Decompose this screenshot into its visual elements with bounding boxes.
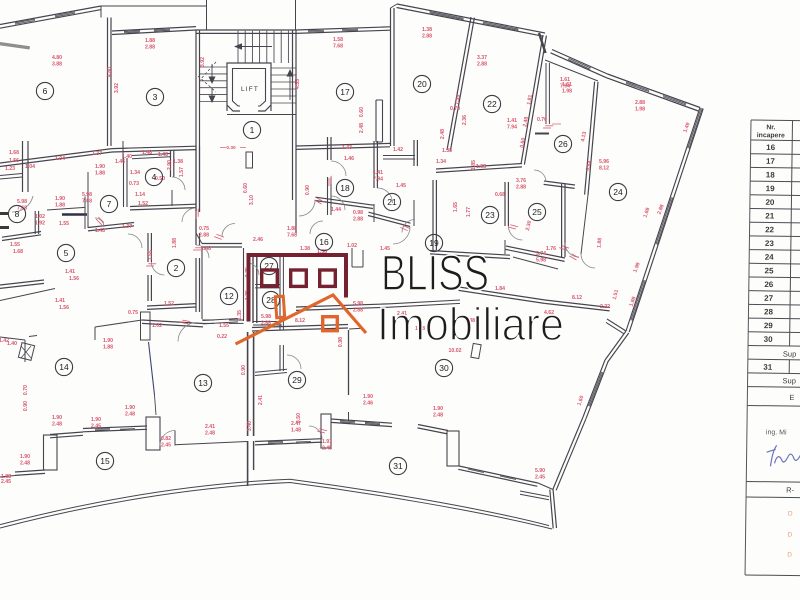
svg-text:17: 17	[766, 157, 776, 166]
svg-text:23: 23	[765, 239, 775, 248]
svg-text:1.90: 1.90	[95, 164, 105, 170]
svg-text:18: 18	[340, 183, 350, 193]
svg-text:1.88: 1.88	[55, 202, 65, 208]
svg-text:0.82: 0.82	[161, 436, 171, 442]
svg-text:1.90: 1.90	[55, 196, 65, 202]
svg-text:4.80: 4.80	[52, 55, 62, 61]
svg-text:2.45: 2.45	[322, 445, 332, 451]
svg-text:Sup: Sup	[783, 349, 796, 358]
svg-text:27: 27	[764, 294, 774, 303]
svg-text:D: D	[787, 552, 792, 559]
svg-text:0.60: 0.60	[243, 183, 249, 193]
svg-text:31: 31	[393, 461, 403, 471]
svg-text:1.76: 1.76	[546, 246, 556, 252]
svg-text:5: 5	[64, 248, 69, 258]
svg-text:0.68: 0.68	[495, 192, 505, 198]
svg-text:1.34: 1.34	[130, 170, 140, 176]
svg-text:15: 15	[100, 456, 110, 466]
svg-text:6: 6	[43, 86, 48, 96]
svg-text:2.45: 2.45	[1, 479, 11, 485]
svg-text:0.98: 0.98	[353, 210, 363, 216]
svg-text:0.60: 0.60	[359, 107, 365, 117]
svg-text:2.88: 2.88	[477, 61, 487, 67]
svg-text:1.90: 1.90	[125, 405, 135, 411]
svg-text:1.48: 1.48	[291, 427, 301, 433]
svg-text:0.30: 0.30	[226, 145, 236, 151]
svg-text:1.56: 1.56	[9, 158, 19, 164]
svg-text:20: 20	[765, 198, 775, 207]
svg-text:1.90: 1.90	[363, 394, 373, 400]
svg-text:8.12: 8.12	[572, 295, 582, 301]
svg-text:2.48: 2.48	[52, 421, 62, 427]
svg-text:1.98: 1.98	[562, 88, 572, 94]
svg-text:2.48: 2.48	[433, 412, 443, 418]
svg-text:1.34: 1.34	[436, 159, 446, 165]
svg-text:7.94: 7.94	[373, 176, 383, 182]
svg-text:1.77: 1.77	[466, 207, 472, 217]
svg-text:8: 8	[15, 209, 20, 219]
svg-text:3.76: 3.76	[516, 178, 526, 184]
svg-text:0.90: 0.90	[23, 401, 29, 411]
svg-text:1.55: 1.55	[148, 250, 154, 260]
svg-text:25: 25	[765, 266, 775, 275]
svg-text:12: 12	[224, 291, 234, 301]
svg-text:7.68: 7.68	[333, 43, 343, 49]
svg-text:1.48: 1.48	[95, 228, 105, 234]
svg-text:1.88: 1.88	[597, 238, 604, 249]
svg-text:2.36: 2.36	[462, 115, 468, 125]
svg-text:D: D	[788, 511, 793, 518]
svg-text:0.75: 0.75	[199, 226, 209, 232]
svg-text:1.14: 1.14	[135, 192, 145, 198]
svg-text:0.70: 0.70	[537, 117, 547, 123]
svg-text:1.65: 1.65	[453, 202, 459, 212]
svg-text:Sup: Sup	[783, 376, 796, 385]
svg-text:16: 16	[319, 237, 329, 247]
svg-text:3.88: 3.88	[52, 61, 62, 67]
svg-text:1.68: 1.68	[9, 150, 19, 156]
svg-text:1.98: 1.98	[635, 106, 645, 112]
svg-text:1.38: 1.38	[300, 246, 310, 252]
svg-text:2.88: 2.88	[422, 33, 432, 39]
svg-text:2.48: 2.48	[125, 411, 135, 417]
svg-text:2.48: 2.48	[20, 460, 30, 466]
svg-text:2.88: 2.88	[516, 184, 526, 190]
svg-text:23: 23	[485, 210, 495, 220]
svg-text:1.88: 1.88	[103, 344, 113, 350]
svg-text:1.90: 1.90	[52, 415, 62, 421]
svg-text:2.88: 2.88	[353, 307, 363, 313]
svg-text:26: 26	[764, 280, 774, 289]
svg-text:1.44: 1.44	[331, 207, 341, 213]
svg-text:1.46: 1.46	[115, 159, 125, 165]
svg-text:4: 4	[152, 172, 157, 182]
svg-text:1.04: 1.04	[55, 156, 65, 162]
svg-text:1.48: 1.48	[142, 150, 152, 156]
svg-text:Nr.: Nr.	[766, 124, 775, 131]
svg-text:3.10: 3.10	[249, 195, 255, 205]
svg-text:22: 22	[487, 99, 497, 109]
svg-text:1.90: 1.90	[433, 406, 443, 412]
svg-text:4.55: 4.55	[295, 79, 301, 89]
svg-text:1.56: 1.56	[59, 305, 69, 311]
svg-text:2.48: 2.48	[359, 123, 365, 133]
svg-text:Imobiliare: Imobiliare	[377, 298, 564, 350]
svg-text:7.68: 7.68	[287, 232, 297, 238]
svg-text:5.74: 5.74	[536, 251, 546, 257]
svg-text:1.92: 1.92	[35, 220, 45, 226]
svg-text:2.22: 2.22	[600, 304, 610, 310]
svg-text:24: 24	[765, 253, 775, 262]
svg-text:1.41: 1.41	[55, 298, 65, 304]
svg-text:7.68: 7.68	[82, 198, 92, 204]
svg-text:5.98: 5.98	[536, 257, 546, 263]
svg-text:7: 7	[107, 199, 112, 209]
svg-text:2.46: 2.46	[253, 237, 263, 243]
svg-text:5.98: 5.98	[261, 314, 271, 320]
svg-text:2.88: 2.88	[353, 216, 363, 222]
svg-text:LIFT: LIFT	[241, 86, 259, 93]
svg-text:5.98: 5.98	[353, 301, 363, 307]
svg-text:1.43: 1.43	[342, 145, 352, 151]
svg-text:1.35: 1.35	[237, 310, 243, 320]
svg-text:3.37: 3.37	[477, 55, 487, 61]
svg-text:ing. Mi: ing. Mi	[766, 429, 787, 436]
svg-text:1.04: 1.04	[25, 164, 35, 170]
svg-text:24: 24	[613, 187, 623, 197]
svg-text:1.38: 1.38	[422, 27, 432, 33]
svg-text:30: 30	[764, 335, 774, 344]
svg-text:0.90: 0.90	[305, 185, 311, 195]
svg-text:2.46: 2.46	[363, 400, 373, 406]
svg-text:1.90: 1.90	[103, 338, 113, 344]
svg-text:0.70: 0.70	[450, 106, 460, 112]
svg-text:incapere: incapere	[757, 132, 785, 139]
svg-text:2: 2	[174, 263, 179, 273]
svg-text:1.61: 1.61	[562, 82, 572, 88]
svg-text:29: 29	[292, 375, 302, 385]
svg-text:2.45: 2.45	[535, 474, 545, 480]
svg-text:19: 19	[766, 184, 776, 193]
svg-text:0.98: 0.98	[338, 337, 344, 347]
svg-text:1.37: 1.37	[92, 151, 102, 157]
svg-text:1.38: 1.38	[173, 159, 183, 165]
svg-text:0.75: 0.75	[128, 310, 138, 316]
svg-text:D: D	[788, 532, 793, 539]
svg-text:0.50: 0.50	[296, 413, 302, 423]
svg-text:1.38: 1.38	[476, 164, 486, 170]
svg-text:2.45: 2.45	[91, 423, 101, 429]
svg-text:2.41: 2.41	[205, 424, 215, 430]
svg-text:1.41: 1.41	[507, 118, 517, 124]
svg-text:20: 20	[417, 79, 427, 89]
svg-text:1.42: 1.42	[0, 338, 9, 344]
svg-text:1.45: 1.45	[396, 183, 406, 189]
svg-text:2.88: 2.88	[635, 100, 645, 106]
svg-text:3.92: 3.92	[114, 83, 120, 93]
svg-text:30: 30	[439, 363, 449, 373]
svg-text:1.02: 1.02	[347, 243, 357, 249]
svg-text:5.98: 5.98	[17, 199, 27, 205]
svg-text:1.57: 1.57	[179, 167, 185, 177]
svg-text:1.55: 1.55	[59, 221, 69, 227]
svg-text:25: 25	[532, 207, 542, 217]
svg-text:28: 28	[764, 307, 774, 316]
svg-text:1.48: 1.48	[201, 246, 211, 252]
svg-text:1.52: 1.52	[138, 201, 148, 207]
svg-text:1.23: 1.23	[5, 166, 15, 172]
svg-text:3: 3	[153, 92, 158, 102]
svg-text:2.88: 2.88	[199, 232, 209, 238]
svg-text:0.90: 0.90	[241, 365, 247, 375]
svg-text:7.94: 7.94	[507, 124, 517, 130]
svg-text:8.12: 8.12	[295, 318, 305, 324]
svg-text:1.48: 1.48	[158, 152, 168, 158]
svg-text:21: 21	[387, 197, 397, 207]
svg-text:1.46: 1.46	[344, 156, 354, 162]
svg-text:1.56: 1.56	[69, 276, 79, 282]
svg-text:2.48: 2.48	[205, 430, 215, 436]
svg-text:5.90: 5.90	[535, 468, 545, 474]
svg-text:0.73: 0.73	[129, 181, 139, 187]
svg-text:1: 1	[250, 125, 255, 135]
svg-text:4.80: 4.80	[107, 67, 113, 77]
svg-text:1.88: 1.88	[172, 238, 178, 248]
svg-text:2.41: 2.41	[258, 395, 264, 405]
svg-text:31: 31	[763, 363, 773, 372]
svg-text:0.70: 0.70	[23, 385, 29, 395]
svg-text:1.38: 1.38	[442, 148, 452, 154]
svg-text:1.37: 1.37	[122, 224, 132, 230]
svg-text:18: 18	[766, 170, 776, 179]
svg-text:29: 29	[764, 321, 774, 330]
svg-text:E: E	[789, 393, 794, 402]
svg-text:5.98: 5.98	[82, 192, 92, 198]
svg-text:1.90: 1.90	[20, 454, 30, 460]
svg-text:1.58: 1.58	[333, 37, 343, 43]
svg-text:1.68: 1.68	[13, 249, 23, 255]
svg-text:2.45: 2.45	[161, 442, 171, 448]
svg-text:1.41: 1.41	[65, 269, 75, 275]
svg-text:0.22: 0.22	[217, 334, 227, 340]
svg-text:1.90: 1.90	[91, 417, 101, 423]
svg-text:R-: R-	[786, 485, 795, 494]
svg-text:1.55: 1.55	[219, 323, 229, 329]
svg-text:1.41: 1.41	[373, 170, 383, 176]
svg-text:1.55: 1.55	[10, 242, 20, 248]
svg-text:2.90: 2.90	[167, 160, 173, 170]
svg-text:26: 26	[558, 139, 568, 149]
svg-text:1.91: 1.91	[322, 439, 332, 445]
svg-text:17: 17	[340, 87, 350, 97]
svg-text:1.88: 1.88	[95, 170, 105, 176]
svg-text:BLISS: BLISS	[381, 245, 489, 301]
svg-text:5.96: 5.96	[599, 159, 609, 165]
svg-text:1.88: 1.88	[287, 226, 297, 232]
svg-text:21: 21	[765, 211, 775, 220]
svg-text:3.92: 3.92	[200, 57, 206, 67]
svg-text:1.84: 1.84	[495, 286, 505, 292]
svg-text:13: 13	[198, 378, 208, 388]
svg-text:3.40: 3.40	[247, 421, 253, 431]
svg-text:2.48: 2.48	[440, 129, 446, 139]
svg-text:1.42: 1.42	[393, 147, 403, 153]
svg-text:1.02: 1.02	[35, 214, 45, 220]
svg-text:1.52: 1.52	[164, 301, 174, 307]
svg-text:16: 16	[766, 143, 776, 152]
svg-text:1.88: 1.88	[145, 38, 155, 44]
svg-text:22: 22	[765, 225, 775, 234]
svg-text:1.02: 1.02	[152, 323, 162, 329]
svg-text:8.12: 8.12	[599, 165, 609, 171]
svg-text:14: 14	[59, 362, 69, 372]
svg-text:0.50: 0.50	[155, 176, 165, 182]
svg-text:2.88: 2.88	[145, 44, 155, 50]
